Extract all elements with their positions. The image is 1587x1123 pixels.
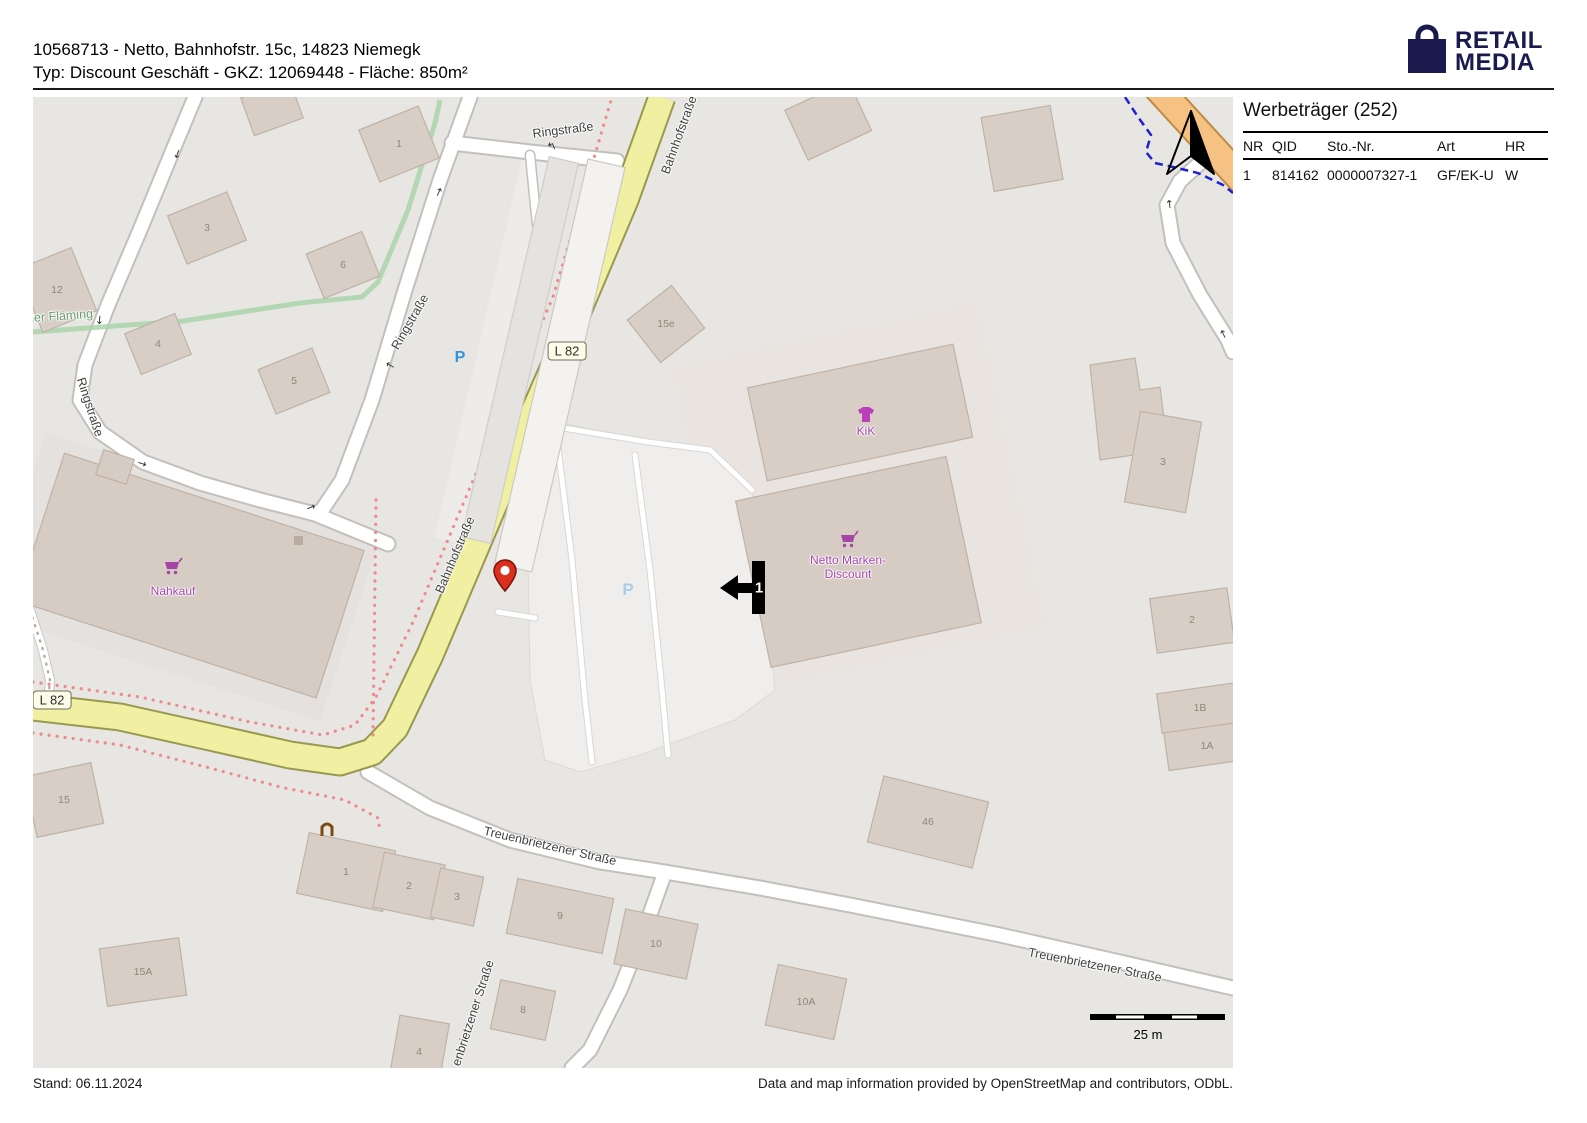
- shopping-bag-icon: [1405, 24, 1451, 76]
- building-number: 6: [340, 259, 346, 271]
- building-number: 10A: [797, 996, 816, 1008]
- building-number: 3: [454, 891, 460, 903]
- building-number: 1B: [1194, 702, 1207, 714]
- table-header-row: NR QID Sto.-Nr. Art HR: [1243, 132, 1548, 159]
- location-pin-icon[interactable]: [494, 560, 516, 591]
- shop-label-netto-line2: Discount: [810, 567, 886, 581]
- parking-symbol-lot: P: [622, 580, 633, 600]
- building-number: 15A: [134, 966, 153, 978]
- building-number: 4: [416, 1046, 422, 1058]
- building-number: 1: [343, 866, 349, 878]
- memorial-icon: [322, 824, 332, 836]
- werbetraeger-marker-number: 1: [755, 580, 763, 597]
- parking-symbol-strip: P: [455, 349, 466, 367]
- building-number: 46: [922, 816, 934, 828]
- route-badge-l82-west: L 82: [33, 691, 71, 710]
- cell-nr: 1: [1243, 159, 1272, 187]
- oneway-arrow-icon: ↑: [1164, 197, 1175, 211]
- shop-label-netto: Netto Marken- Discount: [810, 553, 886, 581]
- oneway-arrow-icon: ↑: [94, 313, 104, 327]
- route-badge-l82-north: L 82: [548, 342, 587, 361]
- building-number: 2: [406, 880, 412, 892]
- col-art: Art: [1437, 132, 1505, 159]
- cell-stonr: 0000007327-1: [1327, 159, 1437, 187]
- retail-media-logo: RETAIL MEDIA: [1405, 24, 1555, 80]
- footer-stand-date: Stand: 06.11.2024: [33, 1076, 142, 1091]
- building-number: 5: [291, 375, 297, 387]
- table-row[interactable]: 1 814162 0000007327-1 GF/EK-U W: [1243, 159, 1548, 187]
- werbetraeger-panel: Werbeträger (252) NR QID Sto.-Nr. Art HR…: [1243, 100, 1563, 187]
- footer-attribution: Data and map information provided by Ope…: [758, 1076, 1233, 1091]
- report-title: 10568713 - Netto, Bahnhofstr. 15c, 14823…: [33, 40, 420, 60]
- report-subtitle: Typ: Discount Geschäft - GKZ: 12069448 -…: [33, 63, 468, 83]
- building-number: 15e: [657, 318, 675, 330]
- building-number: 3: [1160, 456, 1166, 468]
- building-number: 3: [204, 222, 210, 234]
- cell-art: GF/EK-U: [1437, 159, 1505, 187]
- building-number: 8: [520, 1004, 526, 1016]
- cell-hr: W: [1505, 159, 1548, 187]
- col-nr: NR: [1243, 132, 1272, 159]
- werbetraeger-table: NR QID Sto.-Nr. Art HR 1 814162 00000073…: [1243, 131, 1548, 187]
- shop-label-netto-line1: Netto Marken-: [810, 553, 886, 567]
- building-number: 10: [650, 938, 662, 950]
- header-divider: [33, 88, 1554, 90]
- building-number: 2: [1189, 614, 1195, 626]
- building-number: 9: [557, 910, 563, 922]
- shop-label-kik: KiK: [857, 424, 876, 438]
- cell-qid: 814162: [1272, 159, 1327, 187]
- panel-title: Werbeträger (252): [1243, 100, 1563, 122]
- building-number: 1: [396, 138, 402, 150]
- building-number: 15: [58, 794, 70, 806]
- logo-line2: MEDIA: [1455, 52, 1543, 74]
- shop-label-nahkauf: Nahkauf: [151, 584, 196, 598]
- building-number: 12: [51, 284, 63, 296]
- col-qid: QID: [1272, 132, 1327, 159]
- scale-bar: [1090, 1014, 1225, 1020]
- building-number: 1A: [1201, 740, 1214, 752]
- col-stonr: Sto.-Nr.: [1327, 132, 1437, 159]
- col-hr: HR: [1505, 132, 1548, 159]
- scale-label: 25 m: [1134, 1027, 1163, 1042]
- map-viewport: Ringstraße Bahnhofstraße Ringstraße Ring…: [33, 97, 1233, 1068]
- building-number: 4: [155, 338, 161, 350]
